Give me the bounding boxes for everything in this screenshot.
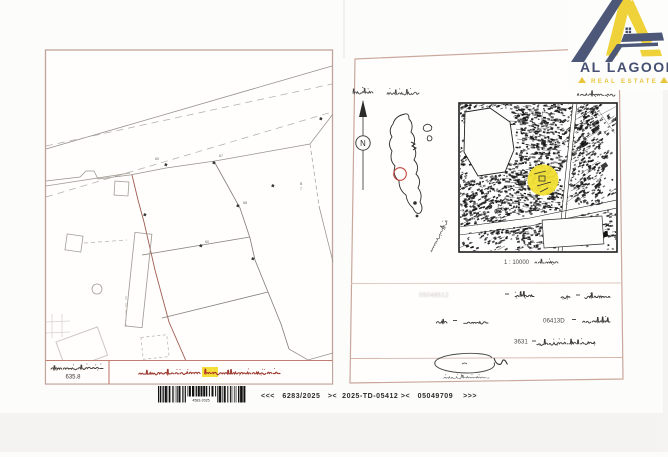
svg-text:N: N bbox=[360, 139, 366, 148]
svg-text:AL LAGOON: AL LAGOON bbox=[580, 59, 668, 75]
svg-text:06413D: 06413D bbox=[543, 318, 565, 325]
svg-text:635.8: 635.8 bbox=[65, 375, 81, 381]
svg-text:67: 67 bbox=[219, 154, 223, 158]
svg-text:7: 7 bbox=[300, 187, 302, 191]
svg-text:60: 60 bbox=[205, 240, 209, 244]
svg-text:68: 68 bbox=[243, 201, 247, 205]
svg-text:05048512: 05048512 bbox=[419, 293, 449, 299]
svg-text:1 : 10000: 1 : 10000 bbox=[504, 260, 530, 266]
svg-text:REAL ESTATE: REAL ESTATE bbox=[591, 78, 658, 85]
svg-text:3631: 3631 bbox=[514, 339, 528, 346]
svg-text:<<< 6283/2025 >< 2025-TD-: <<< 6283/2025 >< 2025-TD-05412 >< 050497… bbox=[261, 393, 477, 400]
svg-text:60: 60 bbox=[155, 157, 159, 161]
svg-text:4583-2025: 4583-2025 bbox=[192, 399, 209, 403]
